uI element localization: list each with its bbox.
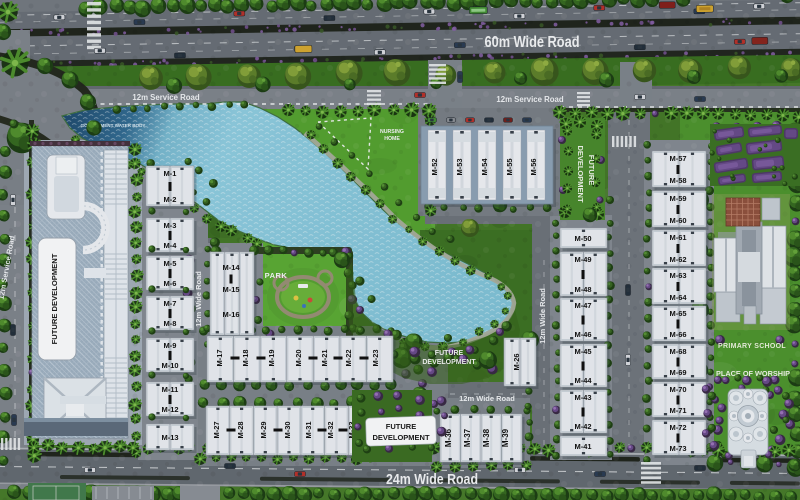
svg-text:M-14: M-14 xyxy=(222,263,240,272)
svg-text:M-71: M-71 xyxy=(669,406,686,415)
svg-text:M-16: M-16 xyxy=(222,310,239,319)
svg-text:M-44: M-44 xyxy=(574,376,592,385)
svg-text:M-65: M-65 xyxy=(669,309,686,318)
svg-text:M-9: M-9 xyxy=(164,341,177,350)
svg-text:60m Wide Road: 60m Wide Road xyxy=(485,34,580,51)
svg-text:M-21: M-21 xyxy=(320,349,329,366)
svg-text:M-49: M-49 xyxy=(574,255,591,264)
svg-text:M-61: M-61 xyxy=(669,233,686,242)
svg-text:M-72: M-72 xyxy=(669,423,686,432)
svg-text:M-17: M-17 xyxy=(215,349,224,366)
svg-text:M-3: M-3 xyxy=(164,221,177,230)
svg-text:24m Wide Road: 24m Wide Road xyxy=(386,471,478,488)
svg-text:M-12: M-12 xyxy=(161,405,178,414)
svg-text:M-6: M-6 xyxy=(164,279,177,288)
svg-text:M-54: M-54 xyxy=(480,158,489,176)
svg-text:M-42: M-42 xyxy=(574,422,591,431)
svg-text:M-47: M-47 xyxy=(574,301,591,310)
svg-text:M-62: M-62 xyxy=(669,255,686,264)
svg-text:NURSING: NURSING xyxy=(380,129,404,135)
svg-text:M-8: M-8 xyxy=(164,319,177,328)
svg-text:M-68: M-68 xyxy=(669,347,686,356)
svg-text:M-29: M-29 xyxy=(259,421,268,438)
svg-text:M-57: M-57 xyxy=(669,154,686,163)
svg-text:PARK: PARK xyxy=(265,271,288,280)
svg-text:M-31: M-31 xyxy=(304,421,313,438)
svg-text:M-19: M-19 xyxy=(267,349,276,366)
svg-text:M-73: M-73 xyxy=(669,444,686,453)
svg-text:FUTURE: FUTURE xyxy=(386,422,416,431)
svg-text:PLACE OF WORSHIP: PLACE OF WORSHIP xyxy=(716,369,790,378)
svg-text:M-63: M-63 xyxy=(669,271,686,280)
svg-text:M-55: M-55 xyxy=(505,158,514,175)
svg-text:12m Wide Road: 12m Wide Road xyxy=(459,394,515,403)
svg-text:12m Wide Road: 12m Wide Road xyxy=(194,271,203,327)
svg-text:FUTURE DEVELOPMENT: FUTURE DEVELOPMENT xyxy=(50,253,59,344)
svg-text:M-58: M-58 xyxy=(669,176,686,185)
svg-text:HOME: HOME xyxy=(384,136,400,142)
svg-text:DEVELOPMENT: DEVELOPMENT xyxy=(372,433,430,442)
svg-text:12m Service Road: 12m Service Road xyxy=(132,93,199,102)
svg-text:FUTURE: FUTURE xyxy=(587,155,596,185)
svg-text:PRIMARY SCHOOL: PRIMARY SCHOOL xyxy=(718,343,786,350)
svg-text:M-22: M-22 xyxy=(344,349,353,366)
svg-text:M-15: M-15 xyxy=(222,285,239,294)
svg-text:M-32: M-32 xyxy=(326,421,335,438)
svg-text:M-66: M-66 xyxy=(669,330,686,339)
svg-text:M-10: M-10 xyxy=(161,361,178,370)
svg-text:M-30: M-30 xyxy=(283,421,292,438)
svg-text:M-48: M-48 xyxy=(574,285,591,294)
svg-text:M-20: M-20 xyxy=(294,349,303,366)
svg-text:M-5: M-5 xyxy=(164,259,177,268)
svg-text:M-43: M-43 xyxy=(574,393,591,402)
svg-text:M-56: M-56 xyxy=(529,158,538,175)
svg-text:M-13: M-13 xyxy=(161,433,178,442)
svg-text:M-11: M-11 xyxy=(162,385,179,394)
svg-text:M-28: M-28 xyxy=(236,421,245,438)
svg-text:M-38: M-38 xyxy=(482,428,491,447)
svg-text:M-45: M-45 xyxy=(574,347,591,356)
svg-text:FUTURE: FUTURE xyxy=(435,350,464,357)
svg-text:M-4: M-4 xyxy=(164,241,178,250)
svg-text:M-64: M-64 xyxy=(669,293,687,302)
svg-text:M-53: M-53 xyxy=(455,158,464,175)
svg-text:M-70: M-70 xyxy=(669,385,686,394)
svg-text:DEVELOPMENT: DEVELOPMENT xyxy=(576,145,585,203)
svg-text:M-52: M-52 xyxy=(430,158,439,175)
svg-text:12m Service Road: 12m Service Road xyxy=(496,95,563,104)
svg-text:M-60: M-60 xyxy=(669,216,686,225)
svg-text:M-46: M-46 xyxy=(574,330,591,339)
svg-text:M-59: M-59 xyxy=(669,194,686,203)
svg-text:M-27: M-27 xyxy=(212,421,221,438)
svg-text:M-2: M-2 xyxy=(164,195,177,204)
svg-text:M-7: M-7 xyxy=(164,299,177,308)
svg-text:M-69: M-69 xyxy=(669,368,686,377)
svg-text:M-23: M-23 xyxy=(371,349,380,366)
svg-text:12m Wide Road: 12m Wide Road xyxy=(538,288,547,344)
svg-text:M-1: M-1 xyxy=(164,169,177,178)
svg-text:M-26: M-26 xyxy=(512,353,521,370)
svg-text:M-39: M-39 xyxy=(501,428,510,447)
svg-text:M-50: M-50 xyxy=(574,234,591,243)
svg-text:M-18: M-18 xyxy=(241,349,250,366)
svg-text:M-37: M-37 xyxy=(463,428,472,447)
svg-text:DEVELOPMENT: DEVELOPMENT xyxy=(422,359,476,366)
svg-text:M-41: M-41 xyxy=(574,442,591,451)
